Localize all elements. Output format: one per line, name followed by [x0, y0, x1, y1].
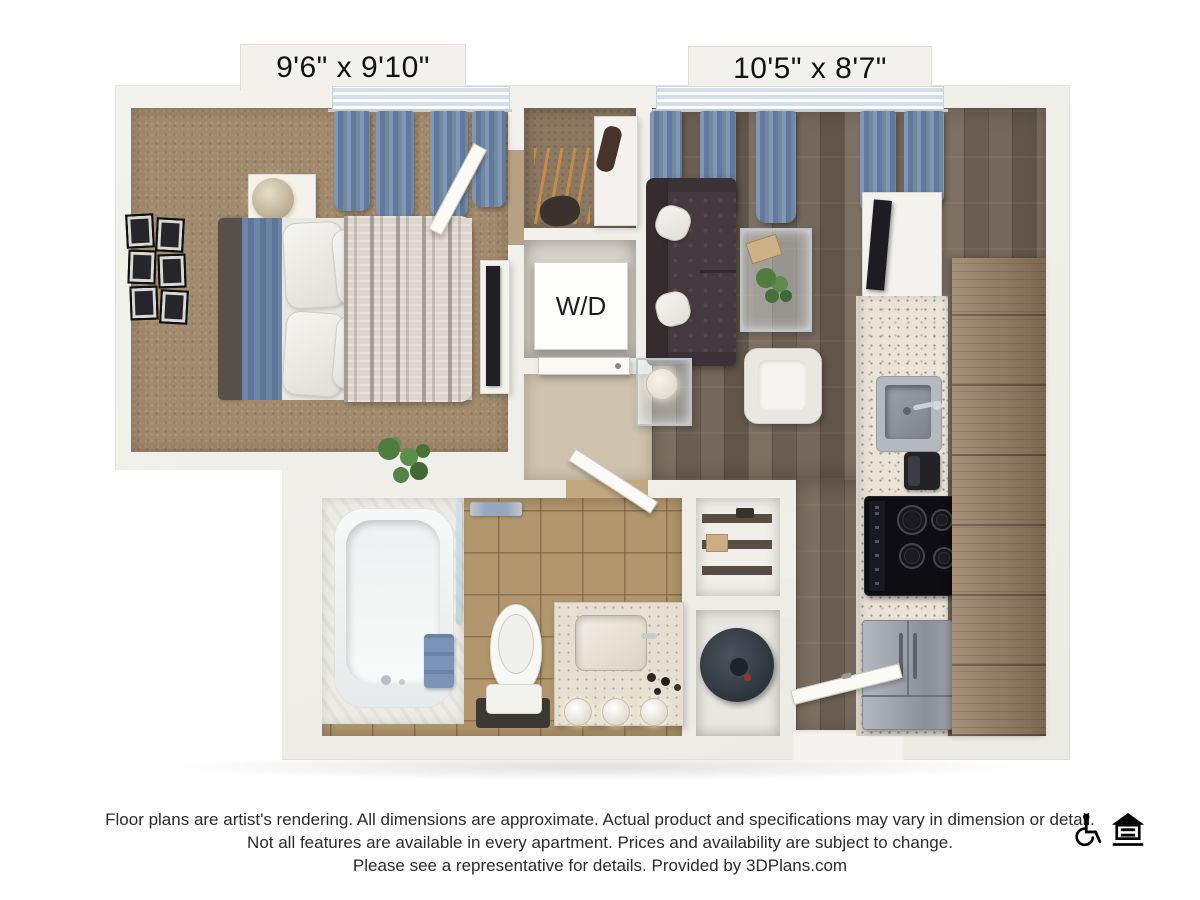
stove	[864, 496, 960, 596]
curtain	[376, 111, 414, 219]
vanity-light	[640, 698, 668, 726]
footer: Floor plans are artist's rendering. All …	[0, 808, 1200, 877]
bed	[218, 216, 472, 402]
bathroom-vent-light	[470, 502, 522, 516]
stove-control-panel	[869, 501, 885, 591]
duvet	[344, 216, 472, 402]
picture-frame	[129, 286, 158, 321]
stove-burner	[897, 505, 927, 535]
vanity-light	[602, 698, 630, 726]
kitchen-cabinets	[952, 258, 1046, 736]
door-knob	[615, 363, 621, 369]
heater-valve	[744, 674, 751, 681]
coffee-maker	[904, 452, 940, 490]
sink-faucet-base	[933, 401, 942, 410]
sofa-cushion-seam	[700, 270, 736, 273]
washer-dryer-unit: W/D	[534, 262, 628, 350]
tub-faucet	[381, 675, 391, 685]
picture-frames	[126, 214, 186, 326]
bed-accent-runner	[242, 218, 282, 400]
coffee-table-plant	[756, 268, 776, 288]
vanity-faucet	[641, 633, 657, 639]
water-heater	[700, 628, 774, 702]
fridge-handle	[913, 633, 917, 679]
fridge-door-seam	[907, 621, 909, 695]
laundry-closet-door	[538, 357, 630, 375]
stove-burner	[931, 509, 953, 531]
disclaimer-line-1: Floor plans are artist's rendering. All …	[0, 808, 1200, 831]
picture-frame	[155, 217, 185, 252]
picture-frame	[159, 289, 189, 324]
equal-housing-opportunity-icon	[1110, 810, 1146, 852]
vanity-light	[564, 698, 592, 726]
bedroom-dimension-label: 9'6" x 9'10"	[276, 51, 430, 85]
living-dimension-label: 10'5" x 8'7"	[733, 52, 887, 86]
bedroom-dimension-tab: 9'6" x 9'10"	[240, 44, 466, 91]
table-lamp	[252, 178, 294, 220]
wheelchair-accessible-icon	[1074, 812, 1106, 850]
picture-frame	[127, 250, 156, 285]
side-table-lamp	[646, 368, 678, 400]
bedroom-tv	[486, 266, 500, 386]
floor-plan-stage: 9'6" x 9'10" 10'5" x 8'7"	[0, 0, 1200, 900]
toilet-tank	[486, 684, 542, 714]
headboard	[218, 218, 242, 400]
potted-plant	[378, 438, 400, 460]
coffee-maker-top	[908, 456, 920, 486]
picture-frame	[125, 213, 155, 248]
pantry-item	[736, 508, 754, 518]
decor-pebbles	[647, 673, 656, 682]
living-window	[656, 86, 944, 110]
fridge-freezer-seam	[863, 695, 953, 697]
door-handle	[841, 672, 852, 679]
pantry-box	[706, 534, 728, 552]
living-dimension-tab: 10'5" x 8'7"	[688, 46, 932, 91]
curtain	[334, 111, 370, 211]
pantry-doorway	[780, 512, 796, 578]
disclaimer-line-3: Please see a representative for details.…	[0, 854, 1200, 877]
washer-dryer-label: W/D	[556, 291, 607, 322]
stove-burner	[899, 543, 925, 569]
bedroom-doorway	[508, 150, 524, 245]
toilet-seat	[498, 614, 534, 674]
sofa-armrest	[668, 178, 736, 192]
armchair-cushion	[758, 360, 806, 410]
sofa	[646, 178, 736, 366]
bedroom-window	[332, 86, 510, 110]
disclaimer-line-2: Not all features are available in every …	[0, 831, 1200, 854]
heater-doorway	[780, 618, 796, 694]
curtain	[904, 111, 944, 205]
bath-towels	[424, 634, 454, 688]
curtain	[756, 111, 796, 223]
kitchen-sink	[876, 376, 942, 452]
shower-glass-panel	[456, 502, 462, 624]
vanity-sink	[575, 615, 647, 671]
toilet	[486, 604, 542, 714]
sink-drain	[903, 407, 911, 415]
picture-frame	[157, 254, 186, 289]
